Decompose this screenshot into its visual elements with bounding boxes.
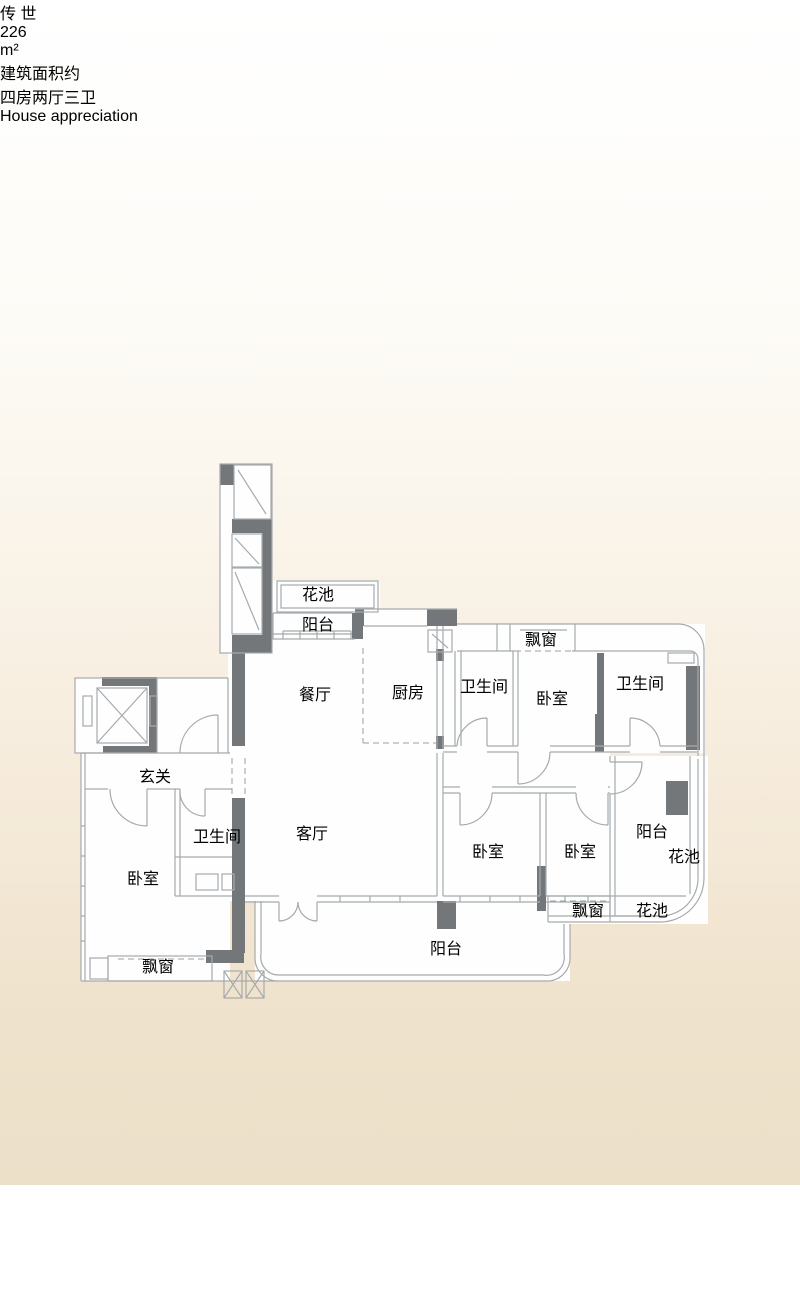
- room-label-bedroom-bottom-middle: 卧室: [472, 843, 504, 861]
- hero-photo: [0, 0, 800, 221]
- floor-plan: 花池 阳台 餐厅 厨房 卫生间 飘窗 卧室 卫生间 玄关 卫生间 卧室 客厅 卧…: [0, 126, 800, 1316]
- room-label-bathroom-top-right: 卫生间: [616, 675, 664, 693]
- room-label-bay-window-top: 飘窗: [525, 631, 557, 649]
- room-label-dining-room: 餐厅: [299, 686, 331, 704]
- room-label-balcony-bottom: 阳台: [430, 940, 462, 958]
- room-label-balcony-top: 阳台: [302, 616, 334, 634]
- room-label-bedroom-bottom-right: 卧室: [564, 843, 596, 861]
- room-label-living-room: 客厅: [296, 825, 328, 843]
- room-label-bathroom-top-middle: 卫生间: [460, 678, 508, 696]
- room-label-entry-hall: 玄关: [139, 768, 171, 786]
- room-label-bathroom-left: 卫生间: [193, 828, 241, 846]
- room-label-flower-bed-right: 花池: [668, 848, 700, 866]
- floor-plan-drawing: 花池 阳台 餐厅 厨房 卫生间 飘窗 卧室 卫生间 玄关 卫生间 卧室 客厅 卧…: [0, 126, 800, 1311]
- page: 传 世 226 m² 建筑面积约 四房两厅三卫 House appreciati…: [0, 0, 800, 1185]
- room-label-flower-bed-top: 花池: [302, 586, 334, 604]
- room-label-bedroom-top: 卧室: [536, 690, 568, 708]
- room-label-balcony-right: 阳台: [636, 823, 668, 841]
- room-fills: [75, 464, 708, 981]
- room-label-bedroom-left: 卧室: [127, 870, 159, 888]
- room-label-bay-window-bottom-right: 飘窗: [572, 902, 604, 920]
- room-label-kitchen: 厨房: [392, 684, 424, 702]
- room-label-bay-window-bottom-left: 飘窗: [142, 958, 174, 976]
- room-label-flower-bed-bottom: 花池: [636, 902, 668, 920]
